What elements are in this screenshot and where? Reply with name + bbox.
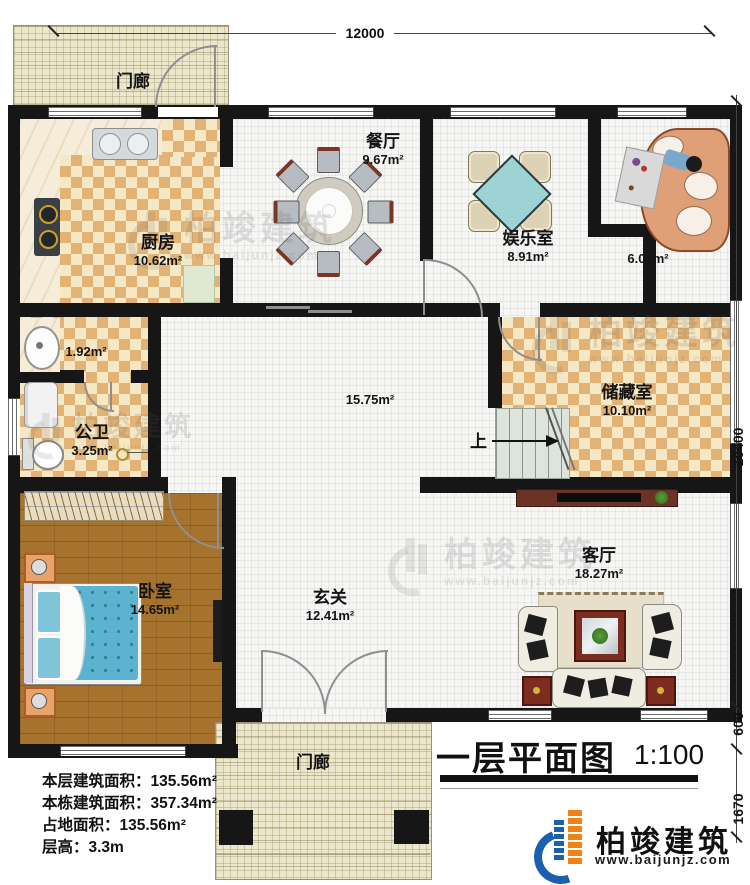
sink-basin bbox=[99, 133, 121, 155]
room-label-foyer: 玄关12.41m² bbox=[285, 588, 375, 623]
porch-column bbox=[219, 810, 253, 845]
dining-chair bbox=[317, 147, 340, 173]
window bbox=[488, 710, 552, 720]
room-label-living: 客厅18.27m² bbox=[554, 546, 644, 581]
logo-building-orange bbox=[568, 810, 582, 864]
end-table bbox=[522, 676, 552, 706]
fan-decor bbox=[31, 693, 47, 709]
burner bbox=[39, 205, 58, 224]
lamp-decor bbox=[657, 687, 664, 694]
sliding-door bbox=[308, 310, 352, 313]
wall bbox=[588, 119, 601, 231]
cushion bbox=[588, 678, 609, 699]
door-leaf bbox=[110, 382, 112, 411]
person-head bbox=[686, 156, 702, 172]
stair-up-label: 上 bbox=[470, 427, 487, 452]
dimension-right-600: 600 bbox=[730, 704, 746, 744]
sliding-door bbox=[266, 306, 310, 309]
title-underline-thin bbox=[440, 788, 698, 789]
end-table bbox=[646, 676, 676, 706]
wall bbox=[8, 303, 213, 317]
window bbox=[268, 107, 374, 117]
plant-decor bbox=[655, 491, 668, 504]
stair-direction-arrow bbox=[546, 435, 559, 447]
cushion bbox=[611, 675, 632, 696]
stat-footprint-area: 占地面积：135.56m² bbox=[42, 815, 217, 837]
dining-chair bbox=[274, 201, 300, 224]
kitchen-entry-floor bbox=[162, 119, 220, 157]
fan-decor bbox=[31, 559, 47, 575]
plant-decor bbox=[592, 628, 608, 644]
door-leaf bbox=[385, 650, 387, 712]
nightstand bbox=[24, 687, 56, 717]
area-stats: 本层建筑面积：135.56m² 本栋建筑面积：357.34m² 占地面积：135… bbox=[42, 771, 217, 859]
flower-decor bbox=[640, 165, 647, 172]
dining-table-center bbox=[322, 204, 336, 218]
room-label-lounge: 6.07m² bbox=[603, 251, 693, 266]
coffee-table bbox=[574, 610, 626, 662]
tv-cabinet bbox=[516, 489, 678, 507]
room-label-bathroom: 公卫3.25m² bbox=[47, 423, 137, 458]
room-label-bedroom: 卧室14.65m² bbox=[110, 582, 200, 617]
company-logo-icon bbox=[534, 810, 592, 876]
window bbox=[8, 398, 20, 456]
cushion bbox=[563, 675, 585, 697]
room-label-dining: 餐厅9.67m² bbox=[338, 132, 428, 167]
sofa bbox=[552, 668, 646, 708]
stair-direction-line bbox=[492, 440, 548, 442]
cushion bbox=[649, 637, 671, 659]
wall bbox=[148, 317, 161, 477]
dimension-top: 12000 bbox=[336, 25, 394, 41]
wall bbox=[131, 370, 148, 383]
room-label-porch-bottom: 门廊 bbox=[273, 753, 353, 773]
pillow bbox=[36, 636, 62, 680]
stat-floor-height: 层高：3.3m bbox=[42, 837, 217, 859]
washing-machine bbox=[24, 382, 58, 428]
flower-decor bbox=[632, 157, 641, 166]
room-label-utility: 1.92m² bbox=[41, 344, 131, 359]
lamp-decor bbox=[533, 687, 540, 694]
wall bbox=[236, 708, 262, 722]
burner bbox=[39, 230, 58, 249]
door-leaf bbox=[538, 317, 540, 361]
wall bbox=[222, 477, 236, 758]
pillow bbox=[36, 590, 62, 634]
wall bbox=[220, 119, 233, 167]
dimension-right-1670: 1670 bbox=[730, 786, 746, 832]
wall bbox=[540, 303, 730, 317]
logo-building-blue bbox=[554, 820, 564, 862]
sink-basin bbox=[127, 133, 149, 155]
porch-column bbox=[394, 810, 429, 844]
dimension-tick bbox=[703, 25, 715, 37]
stat-building-area: 本栋建筑面积：357.34m² bbox=[42, 793, 217, 815]
cushion bbox=[651, 612, 674, 634]
bedroom-tv bbox=[213, 600, 222, 662]
room-label-recreation: 娱乐室8.91m² bbox=[483, 229, 573, 264]
company-logo-url: www.baijunjz.com bbox=[595, 852, 731, 867]
stove bbox=[34, 198, 60, 256]
kitchen-sink bbox=[92, 128, 158, 160]
window bbox=[617, 107, 687, 117]
bed-headboard bbox=[24, 583, 33, 683]
bottom-porch-floor bbox=[215, 722, 432, 880]
nightstand bbox=[24, 553, 56, 583]
cushion bbox=[526, 639, 548, 661]
room-label-hall: 15.75m² bbox=[325, 392, 415, 407]
armchair bbox=[642, 604, 682, 670]
sofa-cushion bbox=[676, 206, 712, 236]
window bbox=[48, 107, 142, 117]
page-title: 一层平面图 bbox=[436, 731, 616, 780]
window bbox=[450, 107, 556, 117]
door-leaf bbox=[423, 259, 425, 315]
scale-label: 1:100 bbox=[634, 739, 704, 771]
door-opening bbox=[158, 107, 218, 117]
title-underline-thick bbox=[440, 775, 698, 782]
dining-chair bbox=[368, 201, 394, 224]
cushion bbox=[524, 614, 547, 636]
dimension-right-total: 10400 bbox=[730, 417, 746, 477]
stat-floor-area: 本层建筑面积：135.56m² bbox=[42, 771, 217, 793]
flower-decor bbox=[628, 185, 634, 191]
floor-plan-canvas: 上 bbox=[0, 0, 750, 885]
window bbox=[60, 746, 186, 756]
door-leaf bbox=[261, 650, 263, 712]
bottom-porch-step-line bbox=[215, 854, 430, 855]
door-leaf bbox=[214, 45, 216, 107]
kitchen-door-mat bbox=[183, 265, 215, 303]
wardrobe bbox=[24, 491, 164, 521]
armchair bbox=[518, 606, 558, 672]
room-label-storage: 储藏室10.10m² bbox=[582, 383, 672, 418]
dining-chair bbox=[317, 251, 340, 277]
quilt-fold bbox=[60, 586, 86, 680]
room-label-porch-top: 门廊 bbox=[93, 72, 173, 92]
window bbox=[640, 710, 708, 720]
tv-screen bbox=[557, 493, 641, 502]
room-label-kitchen: 厨房10.62m² bbox=[113, 233, 203, 268]
door-leaf bbox=[217, 493, 219, 547]
